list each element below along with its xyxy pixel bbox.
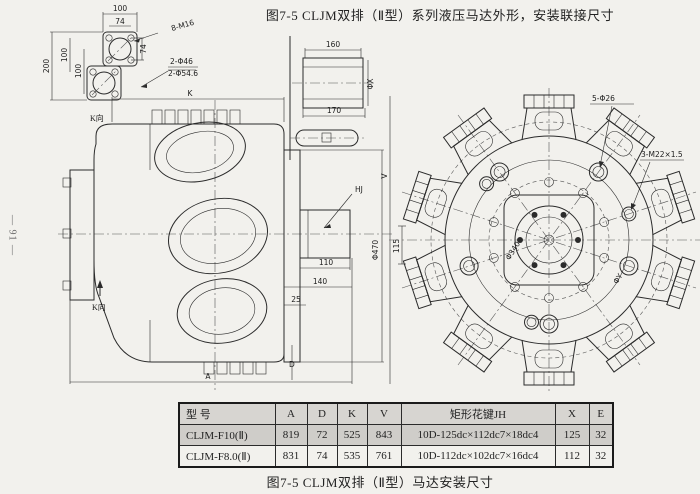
main-dim-K: K [188, 89, 194, 98]
main-dim-110: 110 [319, 258, 334, 267]
cell-V: 761 [367, 446, 401, 468]
scanned-page: 图7-5 CLJM双排（Ⅱ型）系列液压马达外形，安装联接尺寸 — 91 — [0, 0, 700, 494]
col-header-model: 型 号 [179, 403, 275, 425]
circ-note-3m22: 3-M22×1.5 [641, 150, 683, 159]
table-row: CLJM-F10(Ⅱ) 819 72 525 843 10D-125dc×112… [179, 425, 613, 446]
col-header-E: E [589, 403, 613, 425]
motor-front-view: 5-Φ26 3-M22×1.5 Φ340 ΦY [389, 88, 700, 392]
circ-dim-phi340: Φ340 [504, 240, 522, 262]
table-header-row: 型 号 A D K V 矩形花键JH X E [179, 403, 613, 425]
cell-A: 819 [275, 425, 307, 446]
flange-dim-74-right: 74 [139, 44, 148, 54]
table-row: CLJM-F8.0(Ⅱ) 831 74 535 761 10D-112dc×10… [179, 446, 613, 468]
m22-thread-holes [480, 177, 636, 329]
flange-dim-200: 200 [42, 59, 51, 74]
col-header-D: D [307, 403, 337, 425]
col-header-K: K [337, 403, 367, 425]
main-dim-140: 140 [313, 277, 328, 286]
flange-note-2phi46: 2-Φ46 [170, 57, 193, 66]
main-dim-D: D [289, 360, 295, 369]
circ-dim-phiY: ΦY [611, 271, 624, 285]
flange-dim-100-left2: 100 [74, 64, 83, 79]
shaft-hj-label: HJ [355, 185, 363, 194]
main-view-direction-label: K向 [92, 302, 106, 312]
cell-spline: 10D-112dc×102dc7×16dc4 [401, 446, 555, 468]
shaft-dim-phiX: ΦX [366, 78, 375, 89]
main-dim-phi470: Φ470 [371, 240, 380, 260]
col-header-V: V [367, 403, 401, 425]
flange-dim-100-top: 100 [113, 4, 128, 13]
cell-E: 32 [589, 446, 613, 468]
flange-dim-100-left1: 100 [60, 48, 69, 63]
engineering-drawing: 100 74 8-M16 200 100 100 74 2-Φ46 2-Φ54.… [0, 0, 700, 400]
main-dim-25: 25 [291, 295, 301, 304]
main-dim-115: 115 [392, 239, 401, 254]
cell-model: CLJM-F10(Ⅱ) [179, 425, 275, 446]
flange-dim-74-top: 74 [115, 17, 125, 26]
cell-D: 74 [307, 446, 337, 468]
circ-note-5phi26: 5-Φ26 [592, 94, 615, 103]
shaft-dim-170: 170 [327, 106, 342, 115]
cell-K: 535 [337, 446, 367, 468]
cell-model: CLJM-F8.0(Ⅱ) [179, 446, 275, 468]
shaft-spline-detail: 160 170 ΦX [290, 36, 376, 160]
shaft-dim-160: 160 [326, 40, 341, 49]
spec-table: 型 号 A D K V 矩形花键JH X E CLJM-F10(Ⅱ) 819 7… [178, 402, 614, 468]
flange-view-label: K向 [90, 113, 104, 123]
cell-spline: 10D-125dc×112dc7×18dc4 [401, 425, 555, 446]
cell-D: 72 [307, 425, 337, 446]
figure-bottom-caption: 图7-5 CLJM双排（Ⅱ型）马达安装尺寸 [120, 472, 640, 491]
motor-side-view: HJ K A Φ470 110 140 25 D K向 [58, 89, 392, 390]
top-bolt-strip [152, 110, 240, 124]
flange-detail-view: 100 74 8-M16 200 100 100 74 2-Φ46 2-Φ54.… [42, 4, 198, 123]
cell-E: 32 [589, 425, 613, 446]
flange-note-8m16: 8-M16 [170, 18, 195, 33]
col-header-X: X [555, 403, 589, 425]
flange-note-2phi54: 2-Φ54.6 [168, 69, 198, 78]
col-header-spline: 矩形花键JH [401, 403, 555, 425]
cell-V: 843 [367, 425, 401, 446]
col-header-A: A [275, 403, 307, 425]
main-dim-A: A [205, 372, 211, 381]
cylinder-port-ellipses [149, 114, 275, 349]
cell-K: 525 [337, 425, 367, 446]
main-dim-V: V [380, 173, 389, 179]
cell-X: 112 [555, 446, 589, 468]
cell-A: 831 [275, 446, 307, 468]
cell-X: 125 [555, 425, 589, 446]
bottom-bolt-strip [204, 362, 266, 374]
